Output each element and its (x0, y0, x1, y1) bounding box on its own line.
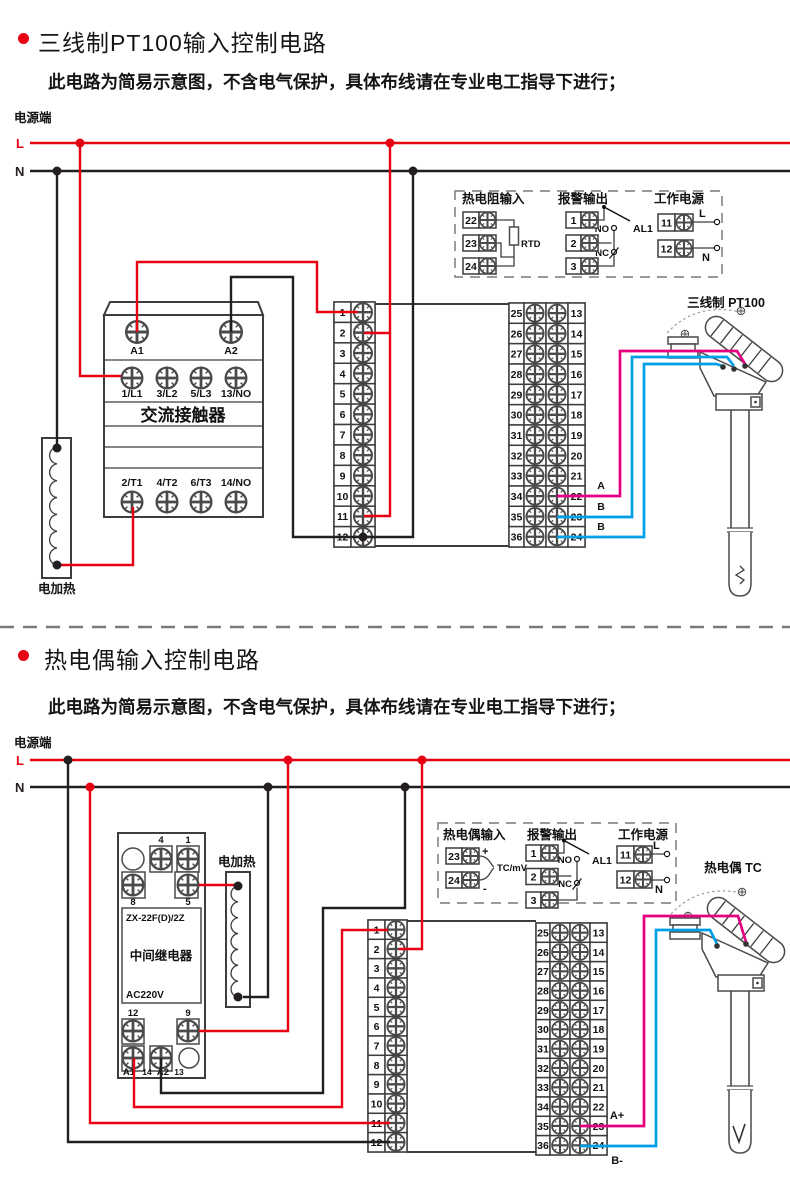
screw-icon (552, 944, 568, 960)
terminal-number: 26 (537, 947, 549, 959)
ac-contactor: A1 A2 1/L1 3/L2 5/L3 13/NO 交流接触器 2/T1 4/… (104, 302, 263, 517)
terminal-number: 25 (537, 927, 549, 939)
junction-dot (264, 783, 273, 792)
screw-icon (552, 1137, 568, 1153)
heater-1: 电加热 (38, 438, 76, 596)
legend-box-2: 热电偶输入 报警输出 工作电源 + - TC/mV NO NC AL1 (438, 823, 676, 908)
screw-icon (526, 427, 543, 444)
sensor-stem (731, 410, 749, 528)
line-l-label: L (16, 753, 24, 768)
sensor-wire-dot (720, 364, 726, 370)
line-n-label: N (15, 780, 24, 795)
screw-icon (552, 925, 568, 941)
terminal-number: 22 (465, 215, 477, 227)
sensor-tip-tube (729, 1090, 751, 1153)
screw-icon (526, 325, 543, 342)
no-label: NO (558, 855, 572, 866)
junction-dot (234, 882, 243, 891)
contact-label: 1/L1 (121, 388, 142, 400)
screw-icon (480, 258, 495, 273)
terminal-number: 14 (571, 328, 583, 340)
sensor-collar-dot (754, 401, 757, 404)
terminal-strip-13-36: 2513261427152816291730183119322033213422… (509, 303, 585, 547)
screw-icon (552, 983, 568, 999)
relay-terminal-label: A2 (157, 1067, 169, 1078)
screw-icon (548, 366, 565, 383)
terminal-number: 33 (537, 1082, 549, 1094)
wiring-diagram-canvas: 电源端 L N 三线制 PT100 (0, 0, 790, 1188)
screw-icon (552, 1118, 568, 1134)
section1-diagram: 电源端 L N 三线制 PT100 (14, 110, 790, 596)
screw-icon (572, 1099, 588, 1115)
screw-icon (548, 345, 565, 362)
terminal-number: 24 (448, 875, 460, 887)
terminal-number: 4 (374, 982, 380, 994)
contact-label: 4/T2 (156, 477, 177, 489)
screw-icon (572, 1079, 588, 1095)
legend-input-title: 热电偶输入 (443, 827, 506, 842)
screw-icon (354, 426, 372, 444)
terminal-number: 12 (661, 243, 673, 255)
screw-icon (635, 872, 650, 887)
terminal-number: 11 (661, 217, 672, 229)
junction-dot (386, 139, 395, 148)
terminal-number: 9 (374, 1079, 380, 1091)
screw-icon (526, 528, 543, 545)
screw-icon (572, 963, 588, 979)
legend-power-terminals: 1112 (617, 846, 652, 888)
screw-icon (572, 925, 588, 941)
screw-icon (526, 488, 543, 505)
legend-alarm-terminals: 123 (566, 212, 598, 274)
switch-arm-icon (564, 841, 589, 855)
junction-dot (53, 561, 62, 570)
terminal-number: 34 (511, 491, 523, 503)
terminal-number: 19 (571, 430, 583, 442)
terminal-number: 23 (448, 851, 460, 863)
screw-icon (191, 492, 212, 513)
heater-2: 电加热 (218, 854, 256, 1007)
tcmv-label: TC/mV (497, 863, 528, 874)
terminal-number: 27 (511, 349, 523, 361)
terminal-number: 29 (511, 389, 523, 401)
legend-box-1: 热电阻输入 报警输出 工作电源 RTD NO NC AL1 (455, 191, 722, 277)
wire-label-b: B (597, 521, 605, 533)
terminal-number: 32 (511, 450, 523, 462)
legend-l-label: L (699, 208, 706, 220)
junction-dot (418, 756, 427, 765)
screw-icon (354, 344, 372, 362)
contact-label: 3/L2 (156, 388, 177, 400)
conduit-fitting (670, 918, 700, 925)
screw-icon (226, 368, 247, 389)
terminal-strip-1-12: 123456789101112 (368, 920, 407, 1152)
n-terminal-circle (664, 877, 669, 882)
legend-input-title: 热电阻输入 (462, 191, 525, 206)
stem-weld (727, 1086, 753, 1090)
terminal-strip-1-12: 123456789101112 (334, 302, 375, 547)
al1-label: AL1 (633, 223, 653, 235)
terminal-number: 7 (374, 1040, 380, 1052)
relay-terminal-label: 1 (185, 835, 191, 846)
relay-terminal-label: 8 (130, 897, 135, 908)
terminal-number: 27 (537, 966, 549, 978)
legend-alarm-title: 报警输出 (558, 191, 608, 206)
junction-dot (234, 993, 243, 1002)
screw-icon (354, 364, 372, 382)
screw-icon (191, 368, 212, 389)
terminal-number: 7 (340, 430, 346, 442)
heater-label: 电加热 (38, 581, 76, 596)
screw-icon (526, 386, 543, 403)
sensor-collar-dot (756, 982, 759, 985)
terminal-number: 6 (374, 1021, 380, 1033)
terminal-strip-13-36: 2513261427152816291730183119322033213422… (536, 923, 607, 1155)
line-l-label: L (16, 136, 24, 151)
terminal-number: 3 (374, 963, 380, 975)
screw-icon (552, 963, 568, 979)
screw-icon (552, 1060, 568, 1076)
stem-weld (727, 528, 753, 532)
screw-icon (526, 447, 543, 464)
wire-label-a: A (597, 480, 605, 492)
screw-icon (387, 1114, 404, 1131)
terminal-number: 11 (337, 511, 348, 523)
screw-icon (387, 1037, 404, 1054)
legend-power-title: 工作电源 (654, 191, 705, 206)
terminal-number: 15 (571, 349, 583, 361)
screw-icon (354, 446, 372, 464)
screw-icon (463, 848, 478, 863)
screw-icon (542, 869, 557, 884)
coil-terminal-label: A1 (130, 345, 144, 357)
screw-icon (552, 1021, 568, 1037)
l-terminal-circle (664, 851, 669, 856)
terminal-number: 16 (593, 985, 605, 997)
screw-icon (552, 1002, 568, 1018)
terminal-number: 5 (340, 389, 346, 401)
screw-icon (572, 1002, 588, 1018)
screw-icon (480, 212, 495, 227)
junction-dot (284, 756, 293, 765)
terminal-number: 32 (537, 1063, 549, 1075)
junction-dot (53, 167, 62, 176)
relay-name: 中间继电器 (130, 948, 193, 963)
screw-icon (548, 427, 565, 444)
terminal-number: 10 (337, 491, 349, 503)
n-terminal-circle (714, 245, 719, 250)
switch-arm-icon (604, 207, 630, 221)
screw-icon (387, 1134, 404, 1151)
contact-label: 5/L3 (190, 388, 211, 400)
terminal-number: 2 (571, 238, 577, 250)
screw-icon (387, 921, 404, 938)
wire-label-b-minus: B- (611, 1155, 623, 1167)
terminal-number: 2 (531, 871, 537, 883)
tc-minus-label: - (483, 883, 487, 895)
relay-terminal-label: 14 (142, 1067, 152, 1077)
legend-l-label: L (653, 840, 660, 852)
terminal-number: 1 (571, 215, 577, 227)
screw-icon (526, 406, 543, 423)
screw-icon (178, 849, 199, 870)
terminal-number: 20 (593, 1063, 605, 1075)
terminal-number: 1 (531, 848, 537, 860)
no-contact-icon (575, 857, 580, 862)
nc-label: NC (558, 879, 572, 890)
junction-dot (53, 444, 62, 453)
terminal-number: 9 (340, 470, 346, 482)
screw-icon (552, 1099, 568, 1115)
contact-label: 13/NO (221, 388, 251, 400)
terminal-number: 35 (511, 511, 523, 523)
screw-icon (548, 386, 565, 403)
screw-icon (552, 1041, 568, 1057)
intermediate-relay: 4 1 8 5 ZX-22F(D)/2Z 中间继电器 AC220V 12 9 (118, 833, 205, 1078)
wire-label-a-plus: A+ (610, 1110, 624, 1122)
screw-icon (387, 1095, 404, 1112)
contact-label: 14/NO (221, 477, 251, 489)
screw-icon (582, 258, 597, 273)
terminal-number: 28 (511, 369, 523, 381)
terminal-number: 16 (571, 369, 583, 381)
manual-page: 三线制PT100输入控制电路 此电路为简易示意图，不含电气保护，具体布线请在专业… (0, 0, 790, 1188)
screw-icon (635, 847, 650, 862)
screw-icon (572, 1060, 588, 1076)
legend-alarm-terminals: 123 (526, 845, 558, 908)
line-n-label: N (15, 164, 24, 179)
screw-icon (157, 368, 178, 389)
terminal-number: 18 (571, 410, 583, 422)
screw-icon (178, 1021, 199, 1042)
terminal-number: 30 (511, 410, 523, 422)
screw-icon (526, 366, 543, 383)
relay-terminal-label: 9 (185, 1008, 190, 1019)
junction-dot (409, 167, 418, 176)
no-contact-icon (612, 226, 617, 231)
junction-dot (359, 533, 368, 542)
screw-icon (572, 1041, 588, 1057)
terminal-number: 3 (571, 261, 577, 273)
screw-icon (226, 492, 247, 513)
screw-icon (552, 1079, 568, 1095)
terminal-number: 36 (511, 532, 523, 544)
screw-icon (738, 888, 746, 896)
conduit-fitting (668, 337, 698, 344)
screw-icon (582, 235, 597, 250)
terminal-number: 30 (537, 1024, 549, 1036)
terminal-number: 34 (537, 1101, 549, 1113)
screw-icon (548, 406, 565, 423)
relay-mount-hole (122, 848, 144, 870)
legend-n-label: N (702, 252, 710, 264)
terminal-number: 36 (537, 1140, 549, 1152)
terminal-number: 26 (511, 328, 523, 340)
terminal-number: 21 (571, 471, 583, 483)
legend-power-title: 工作电源 (618, 827, 669, 842)
sensor-wire-dot (742, 363, 748, 369)
terminal-number: 25 (511, 308, 523, 320)
screw-icon (572, 1021, 588, 1037)
legend-input-terminals: 222324 (463, 212, 496, 274)
junction-dot (401, 783, 410, 792)
screw-icon (122, 368, 143, 389)
legend-input-terminals: 2324 (446, 848, 479, 888)
conduit-fitting (670, 932, 700, 939)
terminal-number: 31 (537, 1043, 549, 1055)
pt100-sensor: 三线制 PT100 (667, 295, 787, 596)
screw-icon (480, 235, 495, 250)
screw-icon (548, 467, 565, 484)
terminal-number: 2 (374, 944, 380, 956)
terminal-number: 33 (511, 471, 523, 483)
screw-icon (676, 215, 691, 230)
legend-alarm-title: 报警输出 (527, 827, 577, 842)
terminal-number: 3 (531, 895, 537, 907)
screw-icon (354, 405, 372, 423)
terminal-number: 12 (620, 874, 632, 886)
terminal-number: 8 (340, 450, 346, 462)
screw-icon (387, 1056, 404, 1073)
screw-icon (548, 325, 565, 342)
screw-icon (548, 447, 565, 464)
sensor-wire-dot (743, 941, 749, 947)
power-terminal-label: 电源端 (14, 735, 52, 750)
terminal-number: 5 (374, 1002, 380, 1014)
screw-icon (582, 212, 597, 227)
junction-dot (86, 783, 95, 792)
terminal-number: 13 (593, 927, 605, 939)
relay-mount-hole (179, 1048, 199, 1068)
junction-dot (76, 139, 85, 148)
terminal-number: 20 (571, 450, 583, 462)
terminal-number: 8 (374, 1060, 380, 1072)
screw-icon (123, 875, 144, 896)
relay-voltage: AC220V (126, 990, 164, 1001)
sensor-wire-dot (731, 366, 737, 372)
screw-icon (542, 892, 557, 907)
contactor-name: 交流接触器 (141, 405, 227, 425)
screw-icon (387, 1076, 404, 1093)
sensor-label: 三线制 PT100 (687, 295, 765, 310)
rtd-label: RTD (521, 239, 541, 250)
terminal-number: 3 (340, 348, 346, 360)
terminal-number: 15 (593, 966, 605, 978)
screw-icon (526, 305, 543, 322)
screw-icon (354, 385, 372, 403)
screw-icon (542, 845, 557, 860)
sensor-label: 热电偶 TC (704, 860, 762, 875)
screw-icon (572, 944, 588, 960)
terminal-number: 22 (593, 1101, 605, 1113)
controller-body-edges (375, 304, 509, 546)
rtd-resistor-icon (510, 227, 519, 245)
screw-icon (387, 960, 404, 977)
l-terminal-circle (714, 219, 719, 224)
terminal-number: 24 (465, 261, 477, 273)
terminal-number: 4 (340, 368, 346, 380)
terminal-number: 6 (340, 409, 346, 421)
terminal-number: 17 (593, 1005, 605, 1017)
terminal-number: 19 (593, 1043, 605, 1055)
relay-model: ZX-22F(D)/2Z (126, 913, 185, 924)
terminal-number: 28 (537, 985, 549, 997)
screw-icon (526, 508, 543, 525)
sensor-wire-dot (714, 943, 720, 949)
al1-label: AL1 (592, 855, 612, 867)
terminal-number: 17 (571, 389, 583, 401)
screw-icon (354, 487, 372, 505)
relay-terminal-label: 4 (158, 835, 164, 846)
terminal-number: 13 (571, 308, 583, 320)
terminal-number: 23 (465, 238, 477, 250)
sensor-tip-tube (729, 532, 751, 596)
tc-sensor: 热电偶 TC (670, 860, 789, 1153)
terminal-number: 31 (511, 430, 523, 442)
legend-power-terminals: 1112 (658, 214, 693, 257)
contactor-top-face (104, 302, 263, 315)
contact-label: 2/T1 (121, 477, 142, 489)
heater-label: 电加热 (218, 854, 256, 869)
screw-icon (387, 998, 404, 1015)
relay-terminal-label: 12 (128, 1008, 139, 1019)
screw-icon (178, 875, 199, 896)
terminal-number: 21 (593, 1082, 605, 1094)
contact-label: 6/T3 (190, 477, 211, 489)
junction-dot (64, 756, 73, 765)
screw-icon (737, 307, 745, 315)
screw-icon (548, 305, 565, 322)
terminal-number: 2 (340, 327, 346, 339)
screw-icon (157, 492, 178, 513)
terminal-number: 35 (537, 1121, 549, 1133)
relay-terminal-label: 13 (174, 1067, 184, 1077)
screw-icon (123, 1021, 144, 1042)
controller-body-edges (407, 921, 536, 1152)
screw-icon (354, 467, 372, 485)
screw-icon (572, 983, 588, 999)
screw-icon (151, 849, 172, 870)
terminal-number: 11 (620, 849, 631, 861)
screw-icon (387, 1018, 404, 1035)
screw-icon (463, 872, 478, 887)
screw-icon (676, 241, 691, 256)
legend-n-label: N (655, 884, 663, 896)
terminal-number: 10 (371, 1098, 383, 1110)
screw-icon (526, 467, 543, 484)
coil-terminal-label: A2 (224, 345, 238, 357)
relay-terminal-label: 5 (185, 897, 191, 908)
screw-icon (526, 345, 543, 362)
sensor-stem (731, 991, 749, 1086)
wire-label-b: B (597, 501, 605, 513)
screw-icon (387, 979, 404, 996)
power-terminal-label: 电源端 (14, 110, 52, 125)
section2-diagram: 电源端 L N 热电偶 TC (14, 735, 790, 1167)
terminal-number: 14 (593, 947, 605, 959)
terminal-number: 29 (537, 1005, 549, 1017)
terminal-number: 18 (593, 1024, 605, 1036)
